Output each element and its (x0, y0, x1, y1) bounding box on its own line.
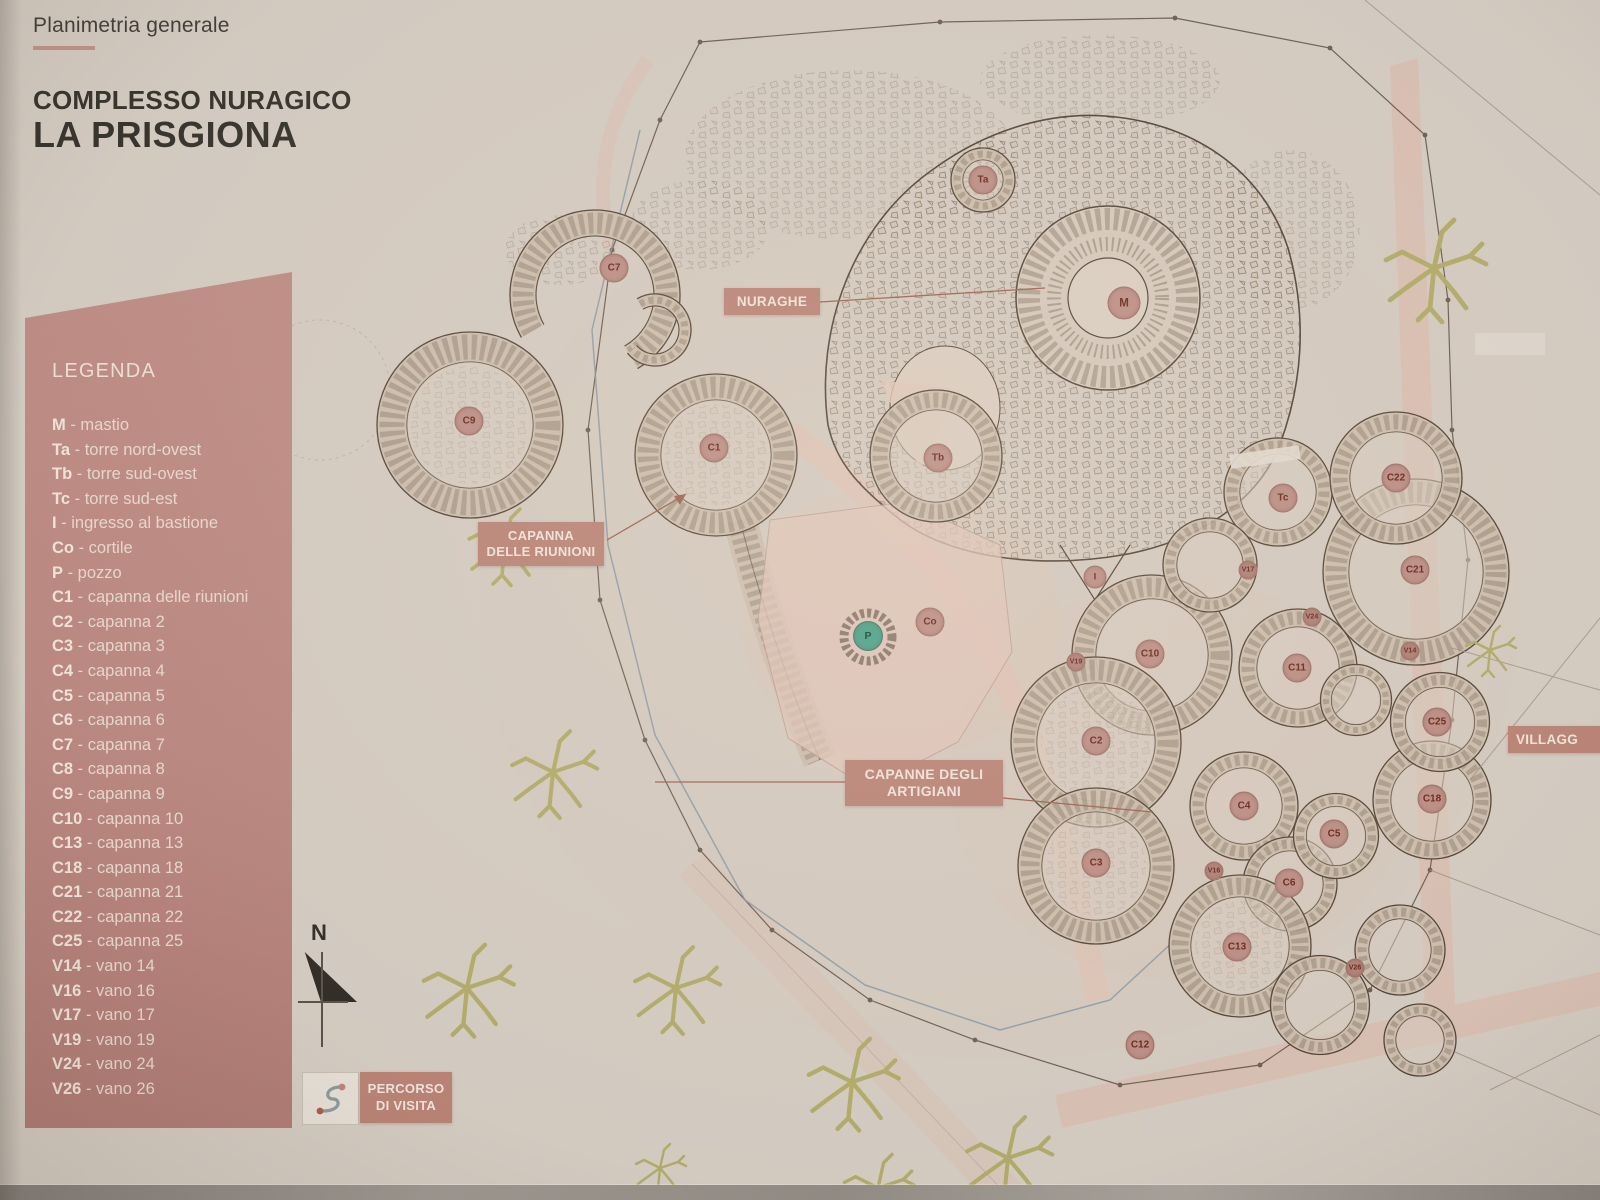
label-artigiani-line1: CAPANNE DEGLI (845, 766, 1003, 784)
legend-item-C6: C6 - capanna 6 (52, 708, 278, 733)
map-marker-C4: C4 (1230, 792, 1259, 821)
legend-item-C25: C25 - capanna 25 (52, 929, 278, 954)
legend-item-Co: Co - cortile (52, 536, 278, 561)
legend-item-C8: C8 - capanna 8 (52, 757, 278, 782)
legend-item-I: I - ingresso al bastione (52, 511, 278, 536)
panel-header: Planimetria generale COMPLESSO NURAGICO … (33, 14, 352, 155)
legend-item-V14: V14 - vano 14 (52, 954, 278, 979)
map-marker-I: I (1084, 566, 1107, 589)
north-arrow-line (321, 952, 323, 1047)
map-marker-V26: V26 (1346, 959, 1365, 978)
north-letter: N (311, 920, 327, 946)
legend-item-V19: V19 - vano 19 (52, 1028, 278, 1053)
site-map-panel: { "header": { "subtitle": "Planimetria g… (0, 0, 1600, 1200)
map-marker-P: P (853, 621, 883, 651)
stone-ring (1355, 905, 1445, 995)
map-marker-C11: C11 (1283, 654, 1312, 683)
map-marker-C18: C18 (1418, 785, 1447, 814)
label-percorso-di-visita: PERCORSO DI VISITA (360, 1072, 452, 1123)
label-riunioni-line1: CAPANNA (478, 528, 604, 544)
legend-item-C1: C1 - capanna delle riunioni (52, 585, 278, 610)
tree-icon (424, 945, 514, 1037)
map-marker-V17: V17 (1239, 561, 1258, 580)
legend-item-V26: V26 - vano 26 (52, 1077, 278, 1102)
map-marker-Ta: Ta (969, 166, 998, 195)
map-marker-C1: C1 (700, 434, 729, 463)
legend-item-C2: C2 - capanna 2 (52, 610, 278, 635)
map-marker-C22: C22 (1382, 464, 1411, 493)
map-marker-C6: C6 (1275, 869, 1304, 898)
map-marker-Co: Co (916, 608, 945, 637)
stone-ring (1384, 1004, 1456, 1076)
legend-item-Tc: Tc - torre sud-est (52, 487, 278, 512)
title-line2: LA PRISGIONA (33, 115, 352, 155)
label-artigiani-line2: ARTIGIANI (845, 783, 1003, 801)
legend-item-V24: V24 - vano 24 (52, 1052, 278, 1077)
north-arrow-crossbar (298, 1001, 348, 1003)
photo-bottom-edge (0, 1185, 1600, 1200)
legend-item-V16: V16 - vano 16 (52, 979, 278, 1004)
legend-item-V17: V17 - vano 17 (52, 1003, 278, 1028)
legend-item-C10: C10 - capanna 10 (52, 807, 278, 832)
legend-item-C13: C13 - capanna 13 (52, 831, 278, 856)
legend-list: M - mastioTa - torre nord-ovestTb - torr… (52, 413, 278, 1102)
map-marker-V24: V24 (1303, 608, 1322, 627)
map-marker-C3: C3 (1082, 849, 1111, 878)
legend-item-Ta: Ta - torre nord-ovest (52, 438, 278, 463)
legend-item-Tb: Tb - torre sud-ovest (52, 462, 278, 487)
panel-title: COMPLESSO NURAGICO LA PRISGIONA (33, 86, 352, 155)
north-arrow-triangle (305, 952, 357, 1002)
label-capanna-riunioni: CAPANNA DELLE RIUNIONI (478, 522, 604, 566)
map-marker-V19: V19 (1067, 653, 1086, 672)
label-nuraghe-text: NURAGHE (724, 294, 820, 309)
map-marker-C12: C12 (1126, 1031, 1155, 1060)
legend-item-P: P - pozzo (52, 561, 278, 586)
label-villaggio: VILLAGG (1508, 726, 1600, 753)
stone-ring (1321, 665, 1392, 736)
map-marker-V16: V16 (1205, 862, 1224, 881)
map-marker-M: M (1108, 287, 1141, 320)
legend-item-C22: C22 - capanna 22 (52, 905, 278, 930)
subtitle-rule (33, 46, 95, 50)
map-marker-Tc: Tc (1269, 484, 1298, 513)
north-arrow-icon: N (294, 920, 364, 1050)
legend-item-C3: C3 - capanna 3 (52, 634, 278, 659)
legend-item-C18: C18 - capanna 18 (52, 856, 278, 881)
legend-item-M: M - mastio (52, 413, 278, 438)
legend-panel: LEGENDA M - mastioTa - torre nord-ovestT… (25, 272, 292, 1128)
label-riunioni-line2: DELLE RIUNIONI (478, 544, 604, 560)
route-s-icon (302, 1072, 359, 1125)
legend-item-C4: C4 - capanna 4 (52, 659, 278, 684)
map-marker-C21: C21 (1401, 556, 1430, 585)
legend-item-C7: C7 - capanna 7 (52, 733, 278, 758)
label-capanne-artigiani: CAPANNE DEGLI ARTIGIANI (845, 760, 1003, 806)
legend-item-C21: C21 - capanna 21 (52, 880, 278, 905)
panel-subtitle: Planimetria generale (33, 14, 352, 38)
map-marker-Tb: Tb (924, 444, 953, 473)
map-marker-C2: C2 (1082, 727, 1111, 756)
legend-title: LEGENDA (52, 360, 278, 383)
map-marker-C9: C9 (455, 407, 484, 436)
map-marker-C5: C5 (1320, 820, 1349, 849)
map-marker-C25: C25 (1423, 708, 1452, 737)
label-percorso-line1: PERCORSO (360, 1081, 452, 1097)
map-marker-V14: V14 (1401, 642, 1420, 661)
legend-item-C9: C9 - capanna 9 (52, 782, 278, 807)
label-nuraghe: NURAGHE (724, 288, 820, 315)
legend-item-C5: C5 - capanna 5 (52, 684, 278, 709)
label-villaggio-text: VILLAGG (1516, 732, 1578, 747)
title-line1: COMPLESSO NURAGICO (33, 86, 352, 115)
label-percorso-line2: DI VISITA (360, 1098, 452, 1114)
map-marker-C13: C13 (1223, 933, 1252, 962)
map-marker-C7: C7 (600, 254, 629, 283)
map-marker-C10: C10 (1136, 640, 1165, 669)
